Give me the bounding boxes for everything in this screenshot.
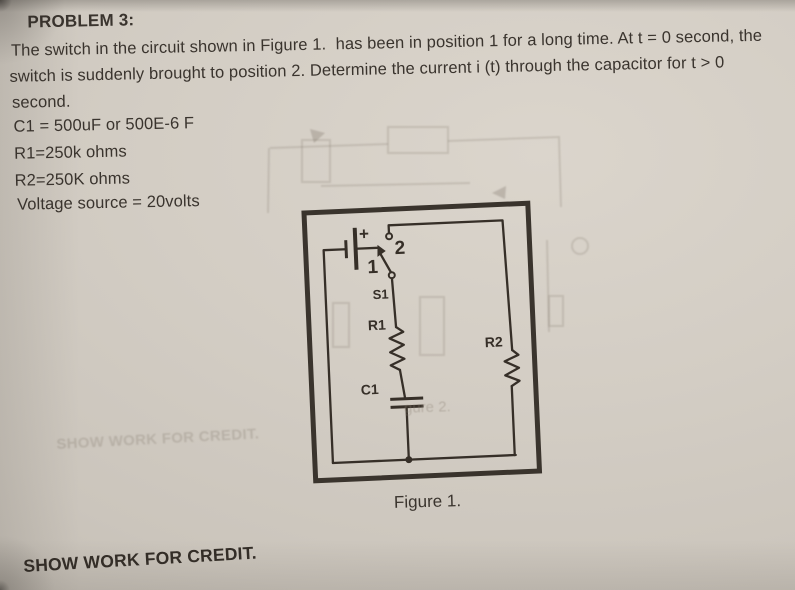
problem-text-line-3: second. [12,93,71,113]
resistor-r1-label: R1 [368,317,387,334]
wire-switch-to-r1 [392,278,396,327]
switch-position1-label: 1 [367,257,379,278]
figure-caption: Figure 1. [394,491,462,513]
parameter-r2: R2=250K ohms [14,169,130,190]
wire-left [324,249,355,463]
parameter-r1: R1=250k ohms [14,142,127,163]
switch-s1-label: S1 [372,286,389,302]
parameter-c1: C1 = 500uF or 500E-6 F [13,114,194,137]
ghost-node [572,238,588,254]
battery-short-plate [346,240,347,258]
resistor-r1-icon [389,327,405,371]
ghost-component-box [549,296,563,326]
wire-bottom-rail [333,455,516,463]
battery-plus-label: + [359,224,370,243]
resistor-r2-label: R2 [484,333,503,350]
wire-r1-to-c1 [400,370,405,399]
figure-1-circuit-diagram: + 2 1 S1 R1 C1 R2 [295,189,554,495]
resistor-r2-icon [504,350,520,387]
parameter-voltage-source: Voltage source = 20volts [17,192,200,215]
bleed-through-figure2-text: gure 2. [404,398,451,417]
junction-dot [405,456,412,463]
capacitor-c1-label: C1 [360,381,379,398]
switch-arm [381,254,391,273]
switch-icon [376,233,394,279]
switch-position2-label: 2 [394,238,405,259]
photographed-worksheet: PROBLEM 3: The switch in the circuit sho… [0,0,795,590]
problem-heading: PROBLEM 3: [27,10,134,32]
wire-r2-to-bottom [512,386,515,455]
wire-battery-to-switch [356,248,378,249]
